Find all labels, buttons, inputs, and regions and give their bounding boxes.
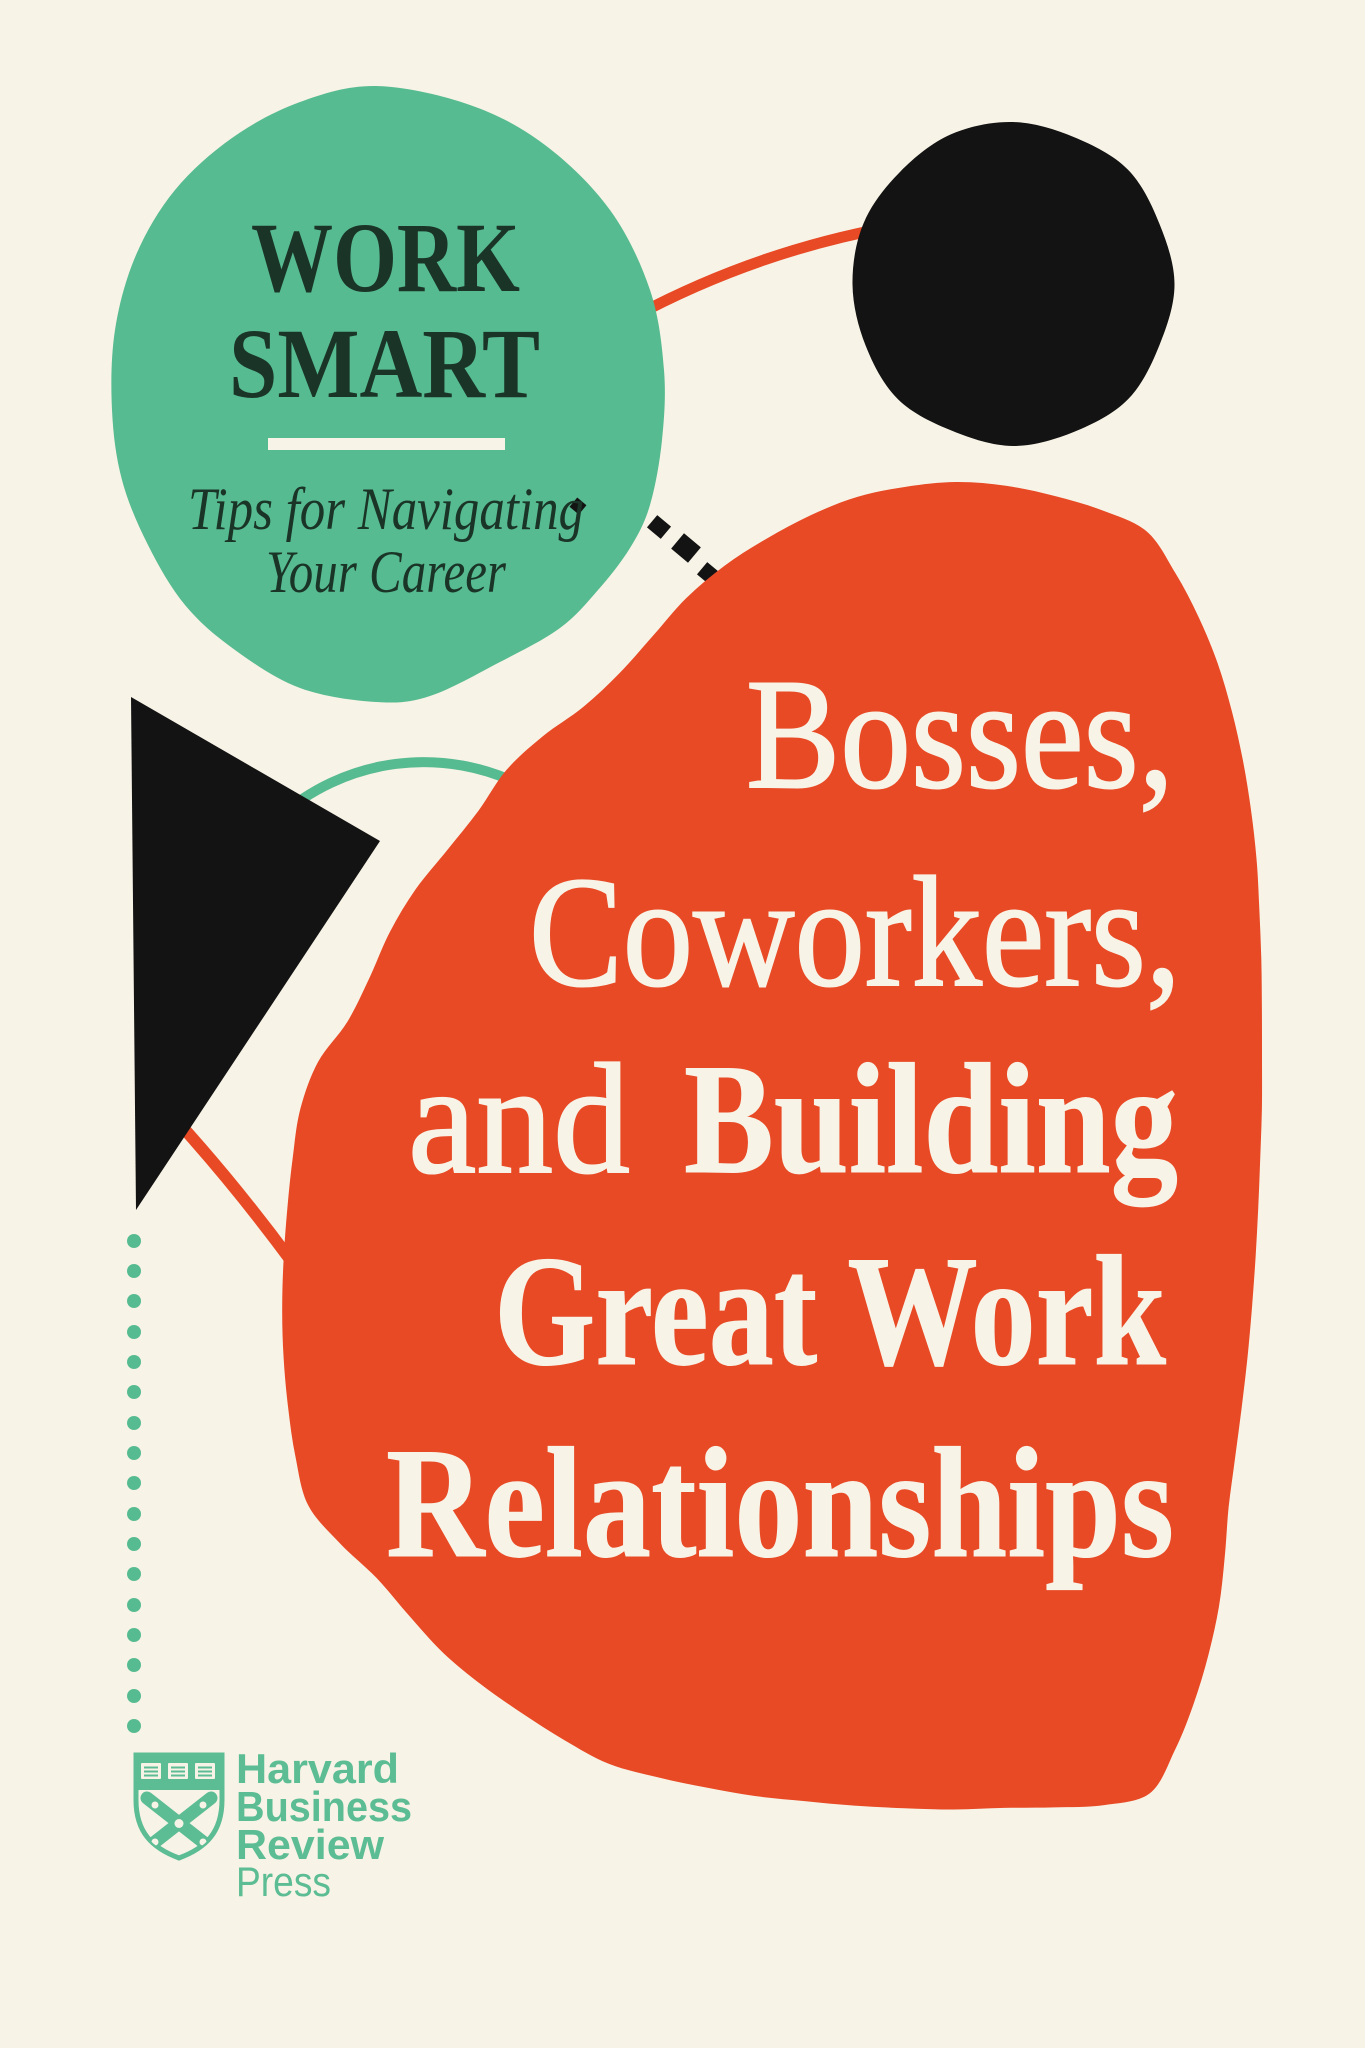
- svg-text:Tips for Navigating: Tips for Navigating: [188, 476, 584, 542]
- svg-text:SMART: SMART: [229, 308, 540, 419]
- svg-text:Coworkers,: Coworkers,: [529, 845, 1181, 1020]
- svg-text:Your Career: Your Career: [266, 539, 507, 605]
- svg-text:Relationships: Relationships: [386, 1416, 1174, 1591]
- svg-text:Bosses,: Bosses,: [746, 647, 1174, 822]
- svg-text:Building: Building: [684, 1032, 1178, 1207]
- svg-text:WORK: WORK: [251, 202, 520, 313]
- svg-text:Great Work: Great Work: [494, 1224, 1166, 1399]
- svg-text:Press: Press: [236, 1858, 331, 1905]
- svg-text:and: and: [408, 1032, 630, 1207]
